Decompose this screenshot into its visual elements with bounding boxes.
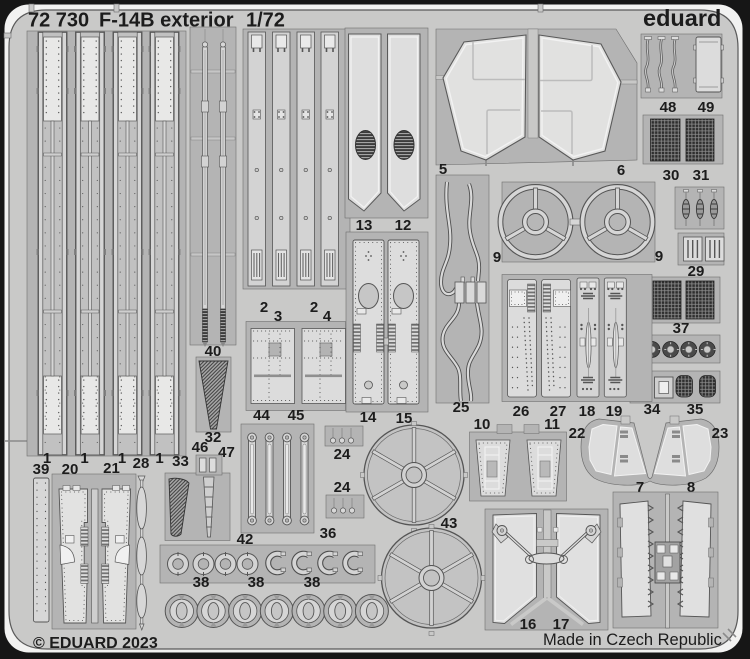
svg-text:21: 21 [103, 460, 120, 477]
svg-text:10: 10 [474, 416, 491, 433]
svg-text:9: 9 [493, 249, 501, 266]
svg-text:37: 37 [673, 320, 690, 337]
svg-text:24: 24 [334, 479, 351, 496]
svg-text:13: 13 [356, 217, 373, 234]
svg-text:28: 28 [133, 455, 150, 472]
svg-text:35: 35 [687, 401, 704, 418]
svg-text:© EDUARD 2023: © EDUARD 2023 [33, 635, 158, 652]
svg-text:12: 12 [395, 217, 412, 234]
svg-text:40: 40 [205, 343, 222, 360]
svg-text:1: 1 [80, 450, 88, 467]
svg-text:9: 9 [655, 248, 663, 265]
svg-text:39: 39 [33, 461, 50, 478]
svg-text:48: 48 [660, 99, 677, 116]
svg-text:38: 38 [248, 574, 265, 591]
svg-text:33: 33 [172, 453, 189, 470]
svg-text:1/72: 1/72 [246, 10, 285, 32]
svg-text:1: 1 [155, 450, 163, 467]
svg-text:eduard: eduard [643, 5, 721, 31]
svg-text:31: 31 [693, 167, 710, 184]
svg-text:38: 38 [304, 574, 321, 591]
svg-text:36: 36 [320, 525, 337, 542]
svg-text:26: 26 [513, 403, 530, 420]
svg-text:19: 19 [606, 403, 623, 420]
svg-text:20: 20 [62, 461, 79, 478]
svg-text:34: 34 [644, 401, 661, 418]
svg-text:27: 27 [550, 403, 567, 420]
svg-text:18: 18 [579, 403, 596, 420]
svg-text:42: 42 [237, 531, 254, 548]
svg-text:2: 2 [260, 299, 268, 316]
svg-text:45: 45 [288, 407, 305, 424]
svg-text:16: 16 [520, 616, 537, 633]
svg-text:38: 38 [193, 574, 210, 591]
svg-text:6: 6 [617, 162, 625, 179]
svg-text:30: 30 [663, 167, 680, 184]
svg-text:49: 49 [698, 99, 715, 116]
svg-text:14: 14 [360, 409, 377, 426]
svg-text:43: 43 [441, 515, 458, 532]
svg-text:32: 32 [205, 429, 222, 446]
svg-text:72 730: 72 730 [28, 10, 89, 32]
svg-text:Made in Czech Republic: Made in Czech Republic [543, 631, 722, 649]
svg-text:23: 23 [712, 425, 729, 442]
svg-text:44: 44 [253, 407, 270, 424]
svg-text:25: 25 [453, 399, 470, 416]
svg-text:22: 22 [569, 425, 586, 442]
svg-text:24: 24 [334, 446, 351, 463]
svg-text:2: 2 [310, 299, 318, 316]
svg-text:15: 15 [396, 410, 413, 427]
